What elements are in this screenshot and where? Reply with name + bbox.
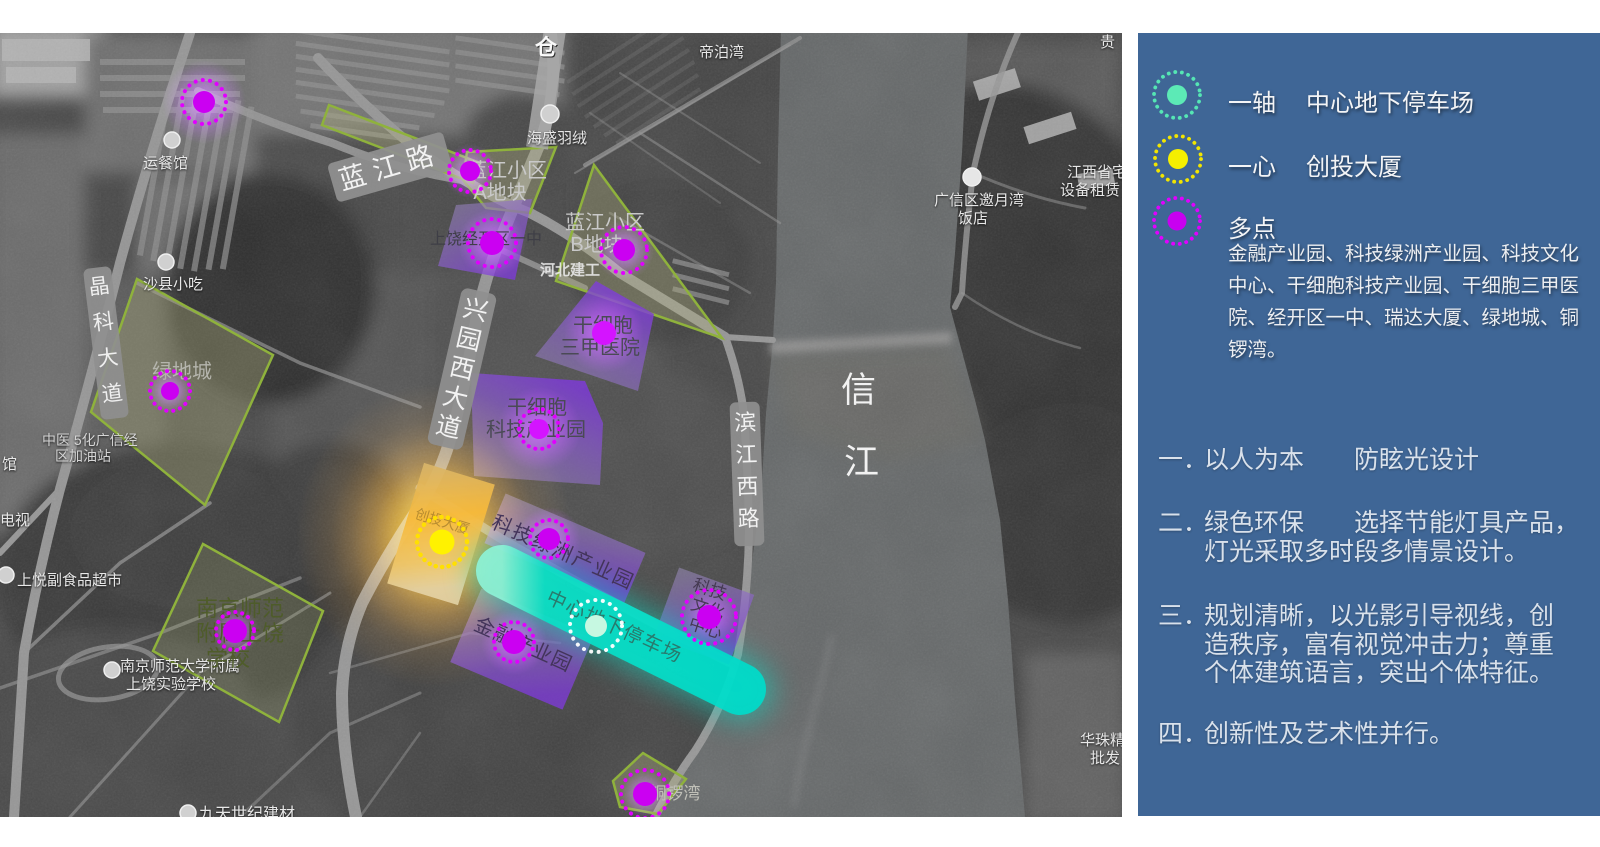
svg-text:帝泊湾: 帝泊湾 xyxy=(699,44,744,61)
svg-text:江: 江 xyxy=(844,443,879,482)
svg-text:河北建工: 河北建工 xyxy=(540,261,600,279)
svg-text:馆: 馆 xyxy=(2,456,17,473)
svg-text:海盛羽绒: 海盛羽绒 xyxy=(527,130,587,147)
svg-text:南京师范: 南京师范 xyxy=(196,596,284,621)
svg-text:区加油站: 区加油站 xyxy=(55,448,111,464)
svg-text:江西省宅: 江西省宅 xyxy=(1067,164,1122,181)
svg-text:仓: 仓 xyxy=(534,35,558,60)
svg-text:设备租赁: 设备租赁 xyxy=(1060,182,1120,199)
svg-text:中医 5化广信经: 中医 5化广信经 xyxy=(42,432,138,448)
svg-text:上悦副食品超市: 上悦副食品超市 xyxy=(17,572,122,589)
svg-text:信: 信 xyxy=(841,371,876,410)
svg-text:九天世纪建材: 九天世纪建材 xyxy=(199,805,295,817)
svg-text:广信区邀月湾: 广信区邀月湾 xyxy=(934,192,1024,209)
svg-text:江: 江 xyxy=(735,442,758,468)
svg-text:沙县小吃: 沙县小吃 xyxy=(143,276,203,293)
svg-text:电视: 电视 xyxy=(0,512,30,529)
svg-text:西: 西 xyxy=(736,474,759,500)
svg-text:路: 路 xyxy=(737,506,760,532)
svg-text:滨: 滨 xyxy=(734,410,757,436)
svg-text:运餐馆: 运餐馆 xyxy=(143,155,188,172)
svg-text:上饶实验学校: 上饶实验学校 xyxy=(126,676,216,693)
svg-text:科: 科 xyxy=(92,310,116,335)
svg-text:饭店: 饭店 xyxy=(958,210,988,227)
svg-text:华珠精: 华珠精 xyxy=(1080,732,1122,749)
svg-text:铜锣湾: 铜锣湾 xyxy=(650,784,701,803)
svg-text:A地块: A地块 xyxy=(473,181,526,204)
svg-text:道: 道 xyxy=(100,381,124,406)
svg-text:贵: 贵 xyxy=(1100,34,1115,51)
svg-text:晶: 晶 xyxy=(87,274,111,299)
svg-text:批发: 批发 xyxy=(1090,750,1120,767)
svg-text:大: 大 xyxy=(96,346,120,371)
